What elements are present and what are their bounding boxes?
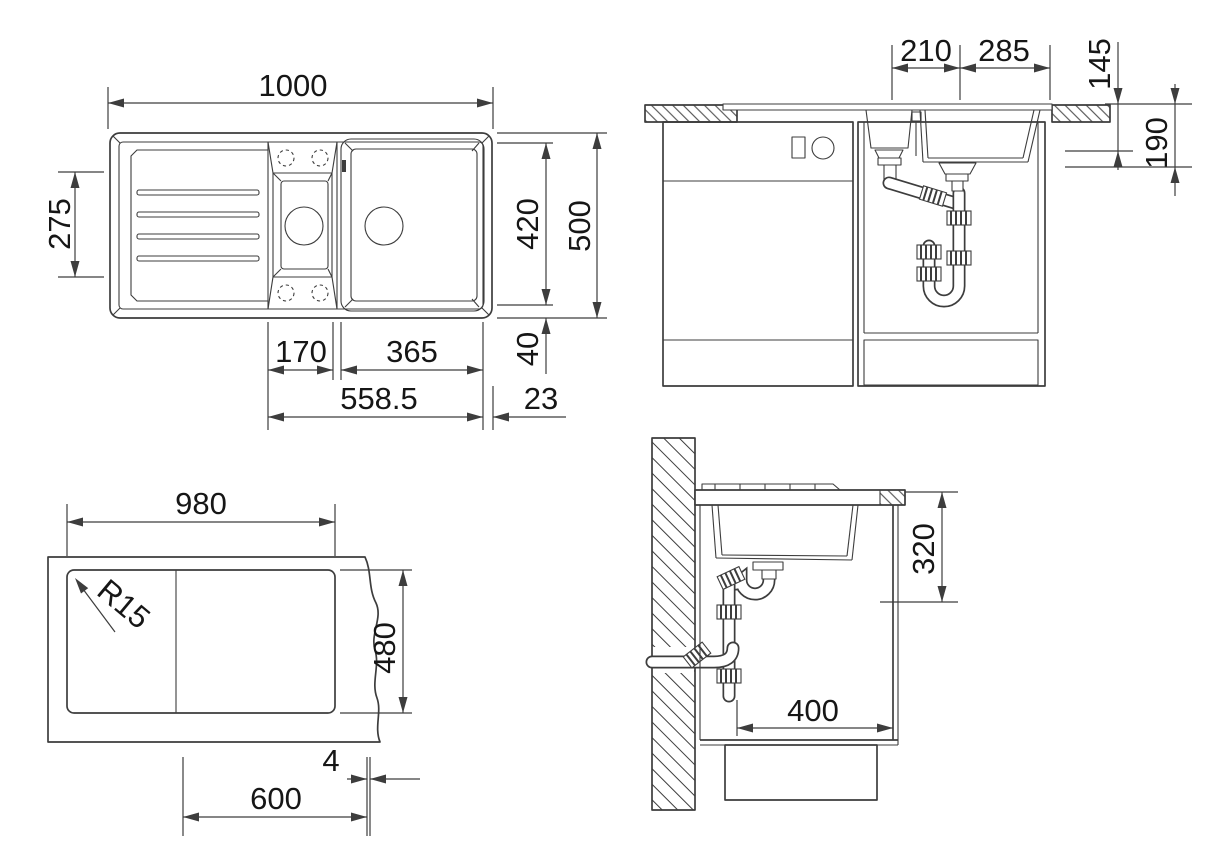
sink-rim-section — [723, 104, 1052, 110]
strainer — [875, 150, 903, 158]
dim-label-400: 400 — [787, 693, 839, 728]
plan-view: 1000 275 420 500 — [42, 68, 607, 430]
small-bowl-drain — [285, 207, 323, 245]
knurled-nut-icon — [947, 251, 971, 265]
dim-label-40: 40 — [510, 332, 545, 366]
dimension-drain-spacing: 210 — [892, 33, 960, 100]
main-bowl — [341, 139, 484, 311]
dim-label-170: 170 — [275, 334, 327, 369]
groove — [137, 190, 259, 195]
sink-rim-inner — [119, 142, 483, 309]
switch-plate-icon — [792, 137, 805, 158]
knurled-nut-icon — [717, 605, 741, 619]
bottom-panel — [864, 340, 1038, 385]
knurled-nut-icon — [717, 669, 741, 683]
dimension-bowl-span: 558.5 — [268, 381, 483, 422]
dim-label-558.5: 558.5 — [340, 381, 418, 416]
dim-label-285: 285 — [978, 33, 1030, 68]
overflow-mark — [342, 160, 346, 172]
tailpipe — [762, 570, 776, 579]
dim-label-190: 190 — [1139, 117, 1174, 169]
dim-label-480: 480 — [367, 622, 402, 674]
dim-label-23: 23 — [524, 381, 558, 416]
worktop-slab — [48, 557, 380, 742]
tap-hole-icon — [312, 285, 328, 301]
tap-hole-icon — [278, 285, 294, 301]
countertop-section — [695, 490, 905, 505]
knurled-nut-icon — [919, 186, 946, 206]
dimension-cutout-width: 980 — [67, 486, 335, 556]
dim-label-500: 500 — [562, 200, 597, 252]
dimension-overall-width: 1000 — [108, 68, 493, 129]
dimension-drainer-depth: 275 — [42, 172, 104, 277]
pipe-coupling-icon — [917, 245, 941, 259]
drainer-area — [131, 150, 268, 301]
dim-label-210: 210 — [900, 33, 952, 68]
cabinet-left-unit — [663, 122, 853, 386]
dim-label-R15: R15 — [91, 572, 157, 635]
dimension-drain-to-edge: 285 — [960, 33, 1050, 100]
groove — [137, 234, 259, 239]
dim-label-4: 4 — [322, 743, 339, 778]
dimension-rim-margin: 40 — [510, 318, 551, 374]
plinth — [725, 745, 877, 800]
dimension-small-bowl-width: 170 — [268, 322, 333, 430]
sink-technical-drawing: 1000 275 420 500 — [0, 0, 1223, 847]
dimension-wall-clearance: 400 — [737, 693, 893, 736]
groove — [137, 212, 259, 217]
knob-icon — [812, 137, 834, 159]
countertop-right — [1052, 105, 1110, 122]
main-strainer — [939, 163, 976, 174]
dimension-trap-depth: 320 — [880, 492, 958, 602]
main-bowl-drain — [365, 207, 403, 245]
dim-label-420: 420 — [510, 198, 545, 250]
cutout-view: 980 R15 480 4 600 — [48, 486, 420, 836]
sink-outer-edge — [110, 133, 492, 318]
drainer-panel — [131, 150, 268, 301]
side-view: 320 400 — [652, 438, 958, 810]
front-view: 210 285 145 190 — [645, 33, 1192, 386]
countertop-front-edge — [880, 490, 905, 505]
tap-hole-icon — [312, 150, 328, 166]
strainer-flange — [753, 562, 783, 570]
trap-assembly — [889, 163, 976, 301]
wall-section — [652, 438, 695, 810]
groove — [137, 256, 259, 261]
tap-deck-profile — [702, 484, 840, 490]
sink-outline — [110, 133, 492, 318]
dim-label-1000: 1000 — [259, 68, 328, 103]
dimension-corner-radius: R15 — [75, 572, 157, 635]
small-bowl-floor — [281, 181, 328, 269]
small-bowl-module — [268, 142, 337, 309]
small-bowl-profile — [866, 110, 912, 148]
dim-label-980: 980 — [175, 486, 227, 521]
dim-label-365: 365 — [386, 334, 438, 369]
dim-label-320: 320 — [906, 523, 941, 575]
dimension-edge-gap: 23 — [493, 381, 566, 430]
main-bowl-section — [912, 110, 1040, 162]
drawing-page: 1000 275 420 500 — [0, 0, 1223, 847]
dim-label-145: 145 — [1082, 38, 1117, 90]
pipe-coupling-icon — [917, 267, 941, 281]
main-bowl-rim — [341, 139, 484, 311]
knurled-nut-icon — [947, 211, 971, 225]
dimension-main-bowl-depth: 190 — [1065, 84, 1192, 196]
dimension-inner-depth: 420 — [497, 143, 553, 305]
main-bowl-floor — [351, 149, 477, 301]
tap-hole-icon — [278, 150, 294, 166]
dim-label-600: 600 — [250, 781, 302, 816]
dimension-gap: 4 — [322, 743, 420, 836]
drainer-grooves — [137, 190, 259, 261]
dim-label-275: 275 — [42, 198, 77, 250]
